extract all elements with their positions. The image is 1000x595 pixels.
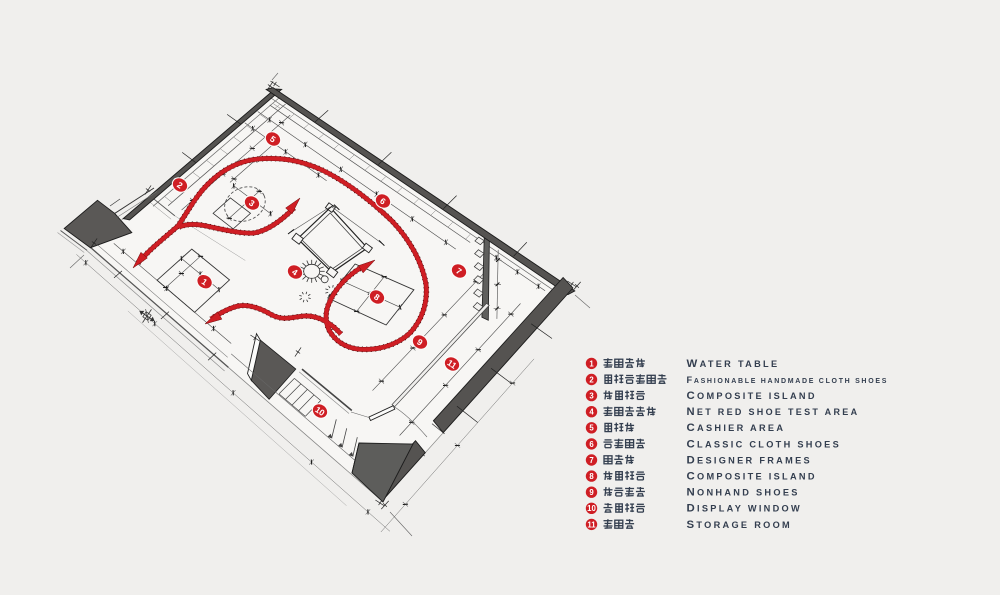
- svg-text:1: 1: [589, 359, 594, 368]
- svg-text:9: 9: [589, 488, 594, 497]
- svg-text:3: 3: [589, 392, 594, 401]
- svg-text:7: 7: [589, 456, 593, 465]
- svg-text:4: 4: [589, 408, 594, 417]
- svg-text:DESIGNER FRAMES: DESIGNER FRAMES: [687, 454, 812, 466]
- svg-text:11: 11: [587, 520, 596, 529]
- svg-text:DISPLAY WINDOW: DISPLAY WINDOW: [687, 503, 802, 515]
- svg-text:CLASSIC CLOTH SHOES: CLASSIC CLOTH SHOES: [687, 438, 842, 450]
- svg-text:NONHAND SHOES: NONHAND SHOES: [687, 487, 800, 499]
- svg-text:5: 5: [589, 424, 594, 433]
- svg-text:NET RED SHOE TEST AREA: NET RED SHOE TEST AREA: [687, 406, 860, 418]
- svg-text:STORAGE ROOM: STORAGE ROOM: [687, 519, 792, 531]
- svg-text:8: 8: [589, 472, 594, 481]
- svg-text:WATER TABLE: WATER TABLE: [687, 358, 780, 370]
- svg-text:COMPOSITE ISLAND: COMPOSITE ISLAND: [687, 390, 817, 402]
- svg-text:2: 2: [589, 375, 594, 384]
- svg-text:COMPOSITE ISLAND: COMPOSITE ISLAND: [687, 471, 817, 483]
- svg-text:CASHIER AREA: CASHIER AREA: [687, 422, 786, 434]
- svg-text:6: 6: [589, 440, 594, 449]
- svg-text:10: 10: [587, 504, 596, 513]
